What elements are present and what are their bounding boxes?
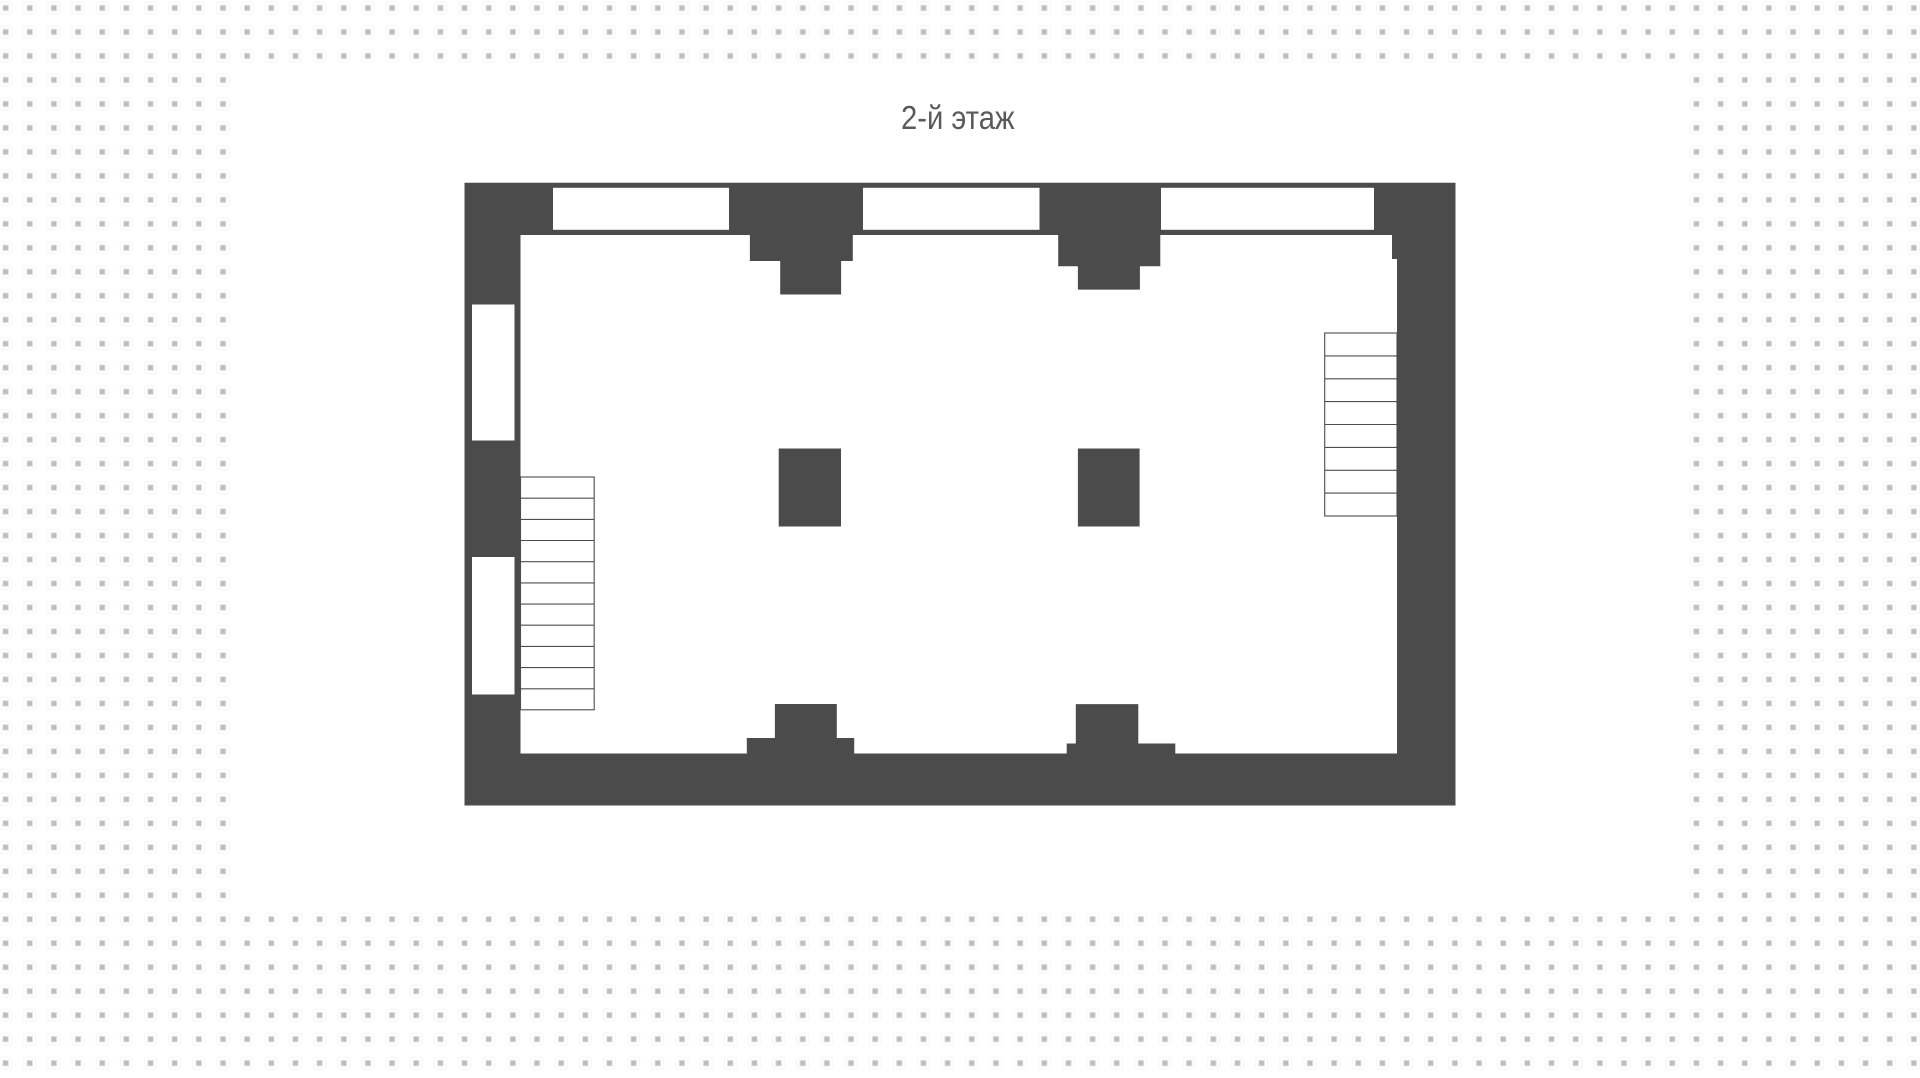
svg-text:2-й этаж: 2-й этаж <box>901 99 1015 136</box>
